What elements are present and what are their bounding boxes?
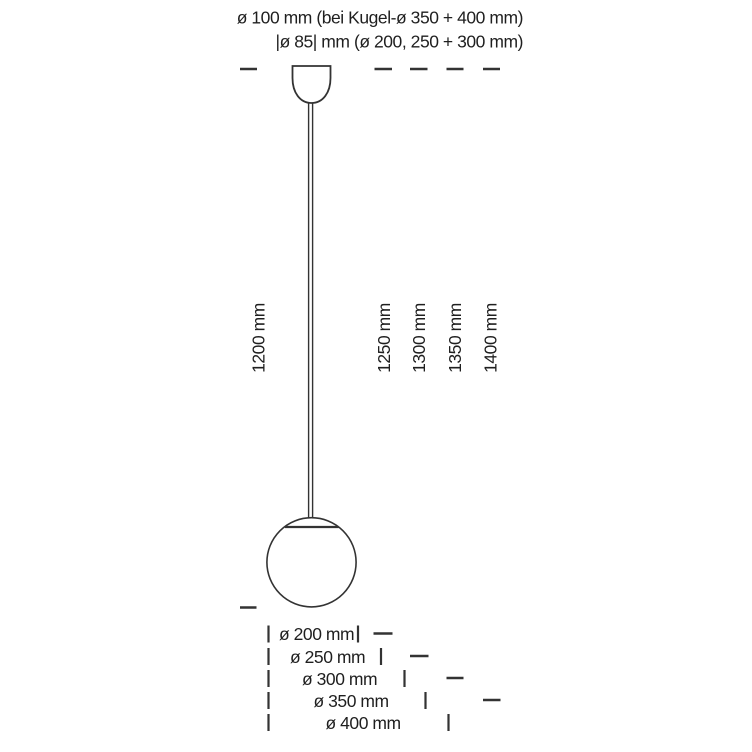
total-length-label-1350: 1350 mm [445, 303, 465, 373]
suspension-cable [309, 103, 313, 518]
total-length-label-1400: 1400 mm [481, 303, 501, 373]
diameter-row-350: ø 350 mm [269, 691, 426, 711]
total-length-label-1250: 1250 mm [374, 303, 394, 373]
canopy-diameter-notes: ø 100 mm (bei Kugel-ø 350 + 400 mm) |ø 8… [237, 8, 523, 52]
sphere-outline [267, 518, 356, 607]
canopy-diameter-note-small: |ø 85| mm (ø 200, 250 + 300 mm) [275, 32, 523, 52]
diameter-label-400: ø 400 mm [326, 713, 401, 733]
diameter-label-250: ø 250 mm [290, 647, 365, 667]
diameter-row-400: ø 400 mm [269, 713, 449, 733]
pendant-lamp-dimension-diagram: ø 100 mm (bei Kugel-ø 350 + 400 mm) |ø 8… [0, 0, 752, 752]
dimension-drawing-canvas: ø 100 mm (bei Kugel-ø 350 + 400 mm) |ø 8… [0, 0, 752, 752]
canopy-outline [293, 66, 331, 103]
diameter-label-350: ø 350 mm [314, 691, 389, 711]
suspension-length-labels: 1200 mm 1250 mm 1300 mm 1350 mm 1400 mm [249, 303, 501, 373]
diameter-row-250: ø 250 mm [269, 647, 382, 667]
total-length-label-1300: 1300 mm [409, 303, 429, 373]
sphere-diameter-rows: ø 200 mm ø 250 mm ø 300 mm ø 350 mm [269, 624, 449, 733]
diameter-row-300: ø 300 mm [269, 669, 405, 689]
cable-length-label: 1200 mm [249, 303, 269, 373]
diameter-label-300: ø 300 mm [302, 669, 377, 689]
glass-sphere [267, 518, 356, 607]
diameter-row-200: ø 200 mm [269, 624, 359, 644]
canopy-diameter-note-large: ø 100 mm (bei Kugel-ø 350 + 400 mm) [237, 8, 523, 28]
diameter-label-200: ø 200 mm [279, 624, 354, 644]
